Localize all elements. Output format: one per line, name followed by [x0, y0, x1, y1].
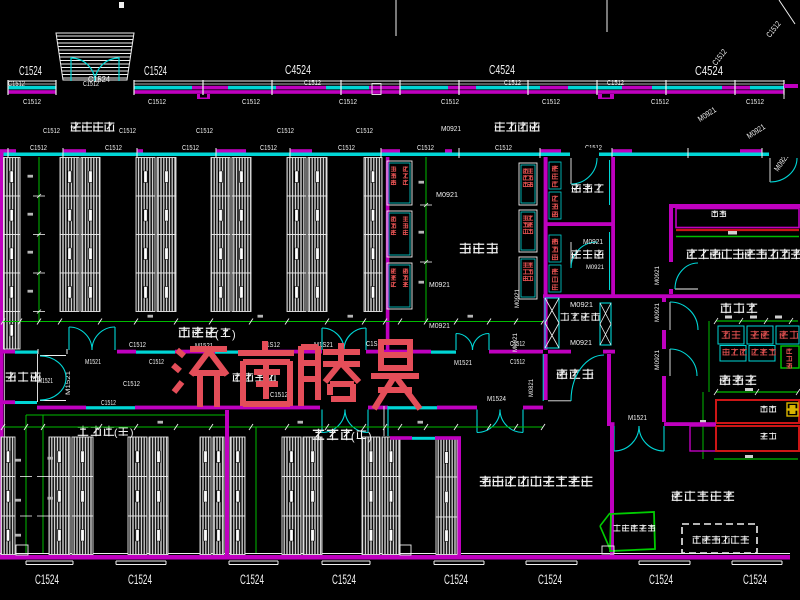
svg-text:C1524: C1524 — [128, 572, 152, 587]
svg-text:C1512: C1512 — [277, 126, 294, 135]
svg-text:C1512: C1512 — [30, 143, 47, 152]
svg-text:C1512: C1512 — [23, 97, 41, 106]
svg-text:C1524: C1524 — [19, 64, 42, 78]
svg-text:M0921: M0921 — [570, 302, 593, 309]
svg-text:(: ( — [215, 329, 219, 341]
svg-text:M0921: M0921 — [436, 190, 458, 199]
svg-text:): ) — [232, 329, 236, 341]
svg-text:C1512: C1512 — [8, 79, 25, 88]
svg-text:C1512: C1512 — [542, 97, 560, 106]
svg-text:C1524: C1524 — [144, 64, 167, 78]
svg-text:C1512: C1512 — [149, 357, 164, 366]
svg-text:M0921: M0921 — [654, 266, 661, 285]
svg-text:M1521: M1521 — [85, 357, 101, 366]
svg-text:C1524: C1524 — [240, 572, 264, 587]
svg-text:C1512: C1512 — [441, 97, 459, 106]
svg-text:M1521: M1521 — [628, 413, 647, 422]
svg-text:C1524: C1524 — [444, 572, 468, 587]
svg-text:M1521: M1521 — [38, 378, 53, 385]
svg-text:C1524: C1524 — [88, 75, 111, 84]
svg-text:C1512: C1512 — [746, 97, 764, 106]
svg-text:M0821: M0821 — [528, 379, 535, 397]
svg-text:M0921: M0921 — [570, 340, 592, 347]
svg-text:C4524: C4524 — [695, 64, 723, 78]
svg-text:M0921: M0921 — [514, 289, 521, 308]
svg-text:(: ( — [114, 427, 118, 439]
svg-text:M0921: M0921 — [654, 350, 661, 370]
svg-text:C1512: C1512 — [417, 143, 434, 152]
svg-text:C1524: C1524 — [649, 572, 673, 587]
svg-text:C1512: C1512 — [105, 143, 122, 152]
svg-text:M0921: M0921 — [429, 321, 450, 330]
svg-text:M0921: M0921 — [583, 239, 603, 246]
svg-text:C1512: C1512 — [356, 126, 373, 135]
svg-text:C1512: C1512 — [123, 379, 140, 388]
svg-text:C1512: C1512 — [651, 97, 669, 106]
svg-text:C1512: C1512 — [242, 97, 260, 106]
svg-text:M0921: M0921 — [512, 333, 519, 352]
svg-text:C1512: C1512 — [270, 390, 288, 399]
svg-text:C1512: C1512 — [339, 97, 357, 106]
svg-text:C1512: C1512 — [304, 78, 321, 87]
svg-text:C1524: C1524 — [332, 572, 356, 587]
svg-text:C1512: C1512 — [182, 143, 199, 152]
svg-text:(: ( — [351, 431, 355, 443]
svg-text:C1524: C1524 — [35, 572, 59, 587]
svg-text:C4524: C4524 — [285, 63, 311, 77]
svg-text:C1512: C1512 — [260, 143, 277, 152]
svg-text:C1512: C1512 — [129, 340, 146, 349]
svg-text:M1521: M1521 — [454, 358, 472, 367]
svg-text:M0921: M0921 — [586, 264, 604, 271]
svg-text:C1512: C1512 — [148, 97, 166, 106]
svg-text:M1524: M1524 — [487, 394, 506, 403]
svg-text:C1512: C1512 — [510, 357, 525, 366]
svg-text:C1512: C1512 — [101, 398, 116, 407]
svg-text:C1512: C1512 — [504, 78, 521, 87]
svg-text:C1512: C1512 — [338, 143, 355, 152]
svg-text:M0921: M0921 — [429, 280, 450, 289]
svg-text:C1512: C1512 — [495, 143, 512, 152]
svg-text:C1512: C1512 — [119, 126, 136, 135]
svg-text:): ) — [368, 431, 372, 443]
svg-text:C1524: C1524 — [538, 572, 562, 587]
svg-text:C1512: C1512 — [196, 126, 213, 135]
svg-text:C1512: C1512 — [607, 78, 624, 87]
svg-text:M0921: M0921 — [441, 124, 461, 133]
svg-text:M0921: M0921 — [654, 303, 661, 322]
svg-text:C1524: C1524 — [743, 572, 767, 587]
svg-text:): ) — [130, 427, 134, 439]
svg-text:C4524: C4524 — [489, 63, 515, 77]
svg-text:C1512: C1512 — [43, 126, 60, 135]
